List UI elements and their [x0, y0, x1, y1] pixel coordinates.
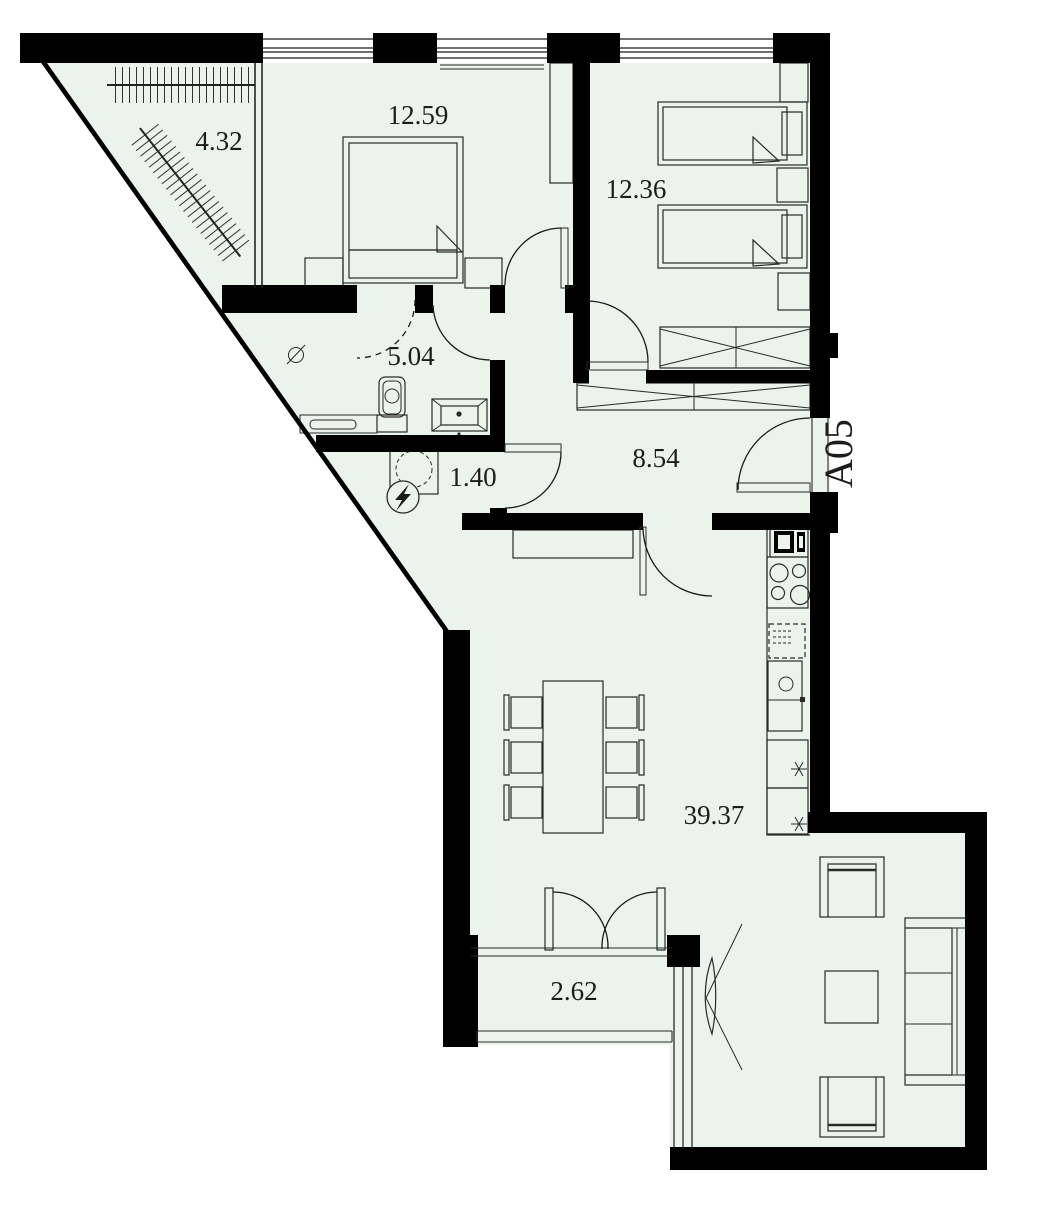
window-bedroom-right	[437, 33, 547, 63]
label-wardrobe: 4.32	[195, 126, 242, 156]
label-apartment-number: A05	[816, 419, 861, 488]
window-kids-bedroom	[620, 33, 773, 63]
label-living-kitchen: 39.37	[684, 800, 745, 830]
label-utility: 1.40	[449, 462, 496, 492]
electric-boiler-symbol	[387, 481, 419, 513]
label-bathroom: 5.04	[387, 341, 435, 371]
label-bedroom: 12.59	[388, 100, 449, 130]
label-hallway: 8.54	[632, 443, 680, 473]
apartment-floor	[20, 33, 987, 1170]
floor-plan-drawing: 4.32 12.59 12.36 5.04 1.40 8.54 39.37 2.…	[0, 0, 1048, 1218]
floor-plan-page: 4.32 12.59 12.36 5.04 1.40 8.54 39.37 2.…	[0, 0, 1048, 1218]
window-bedroom-left	[263, 33, 373, 63]
hanging-rail-horizontal	[107, 67, 255, 103]
label-kids-bedroom: 12.36	[606, 174, 667, 204]
label-balcony: 2.62	[550, 976, 597, 1006]
